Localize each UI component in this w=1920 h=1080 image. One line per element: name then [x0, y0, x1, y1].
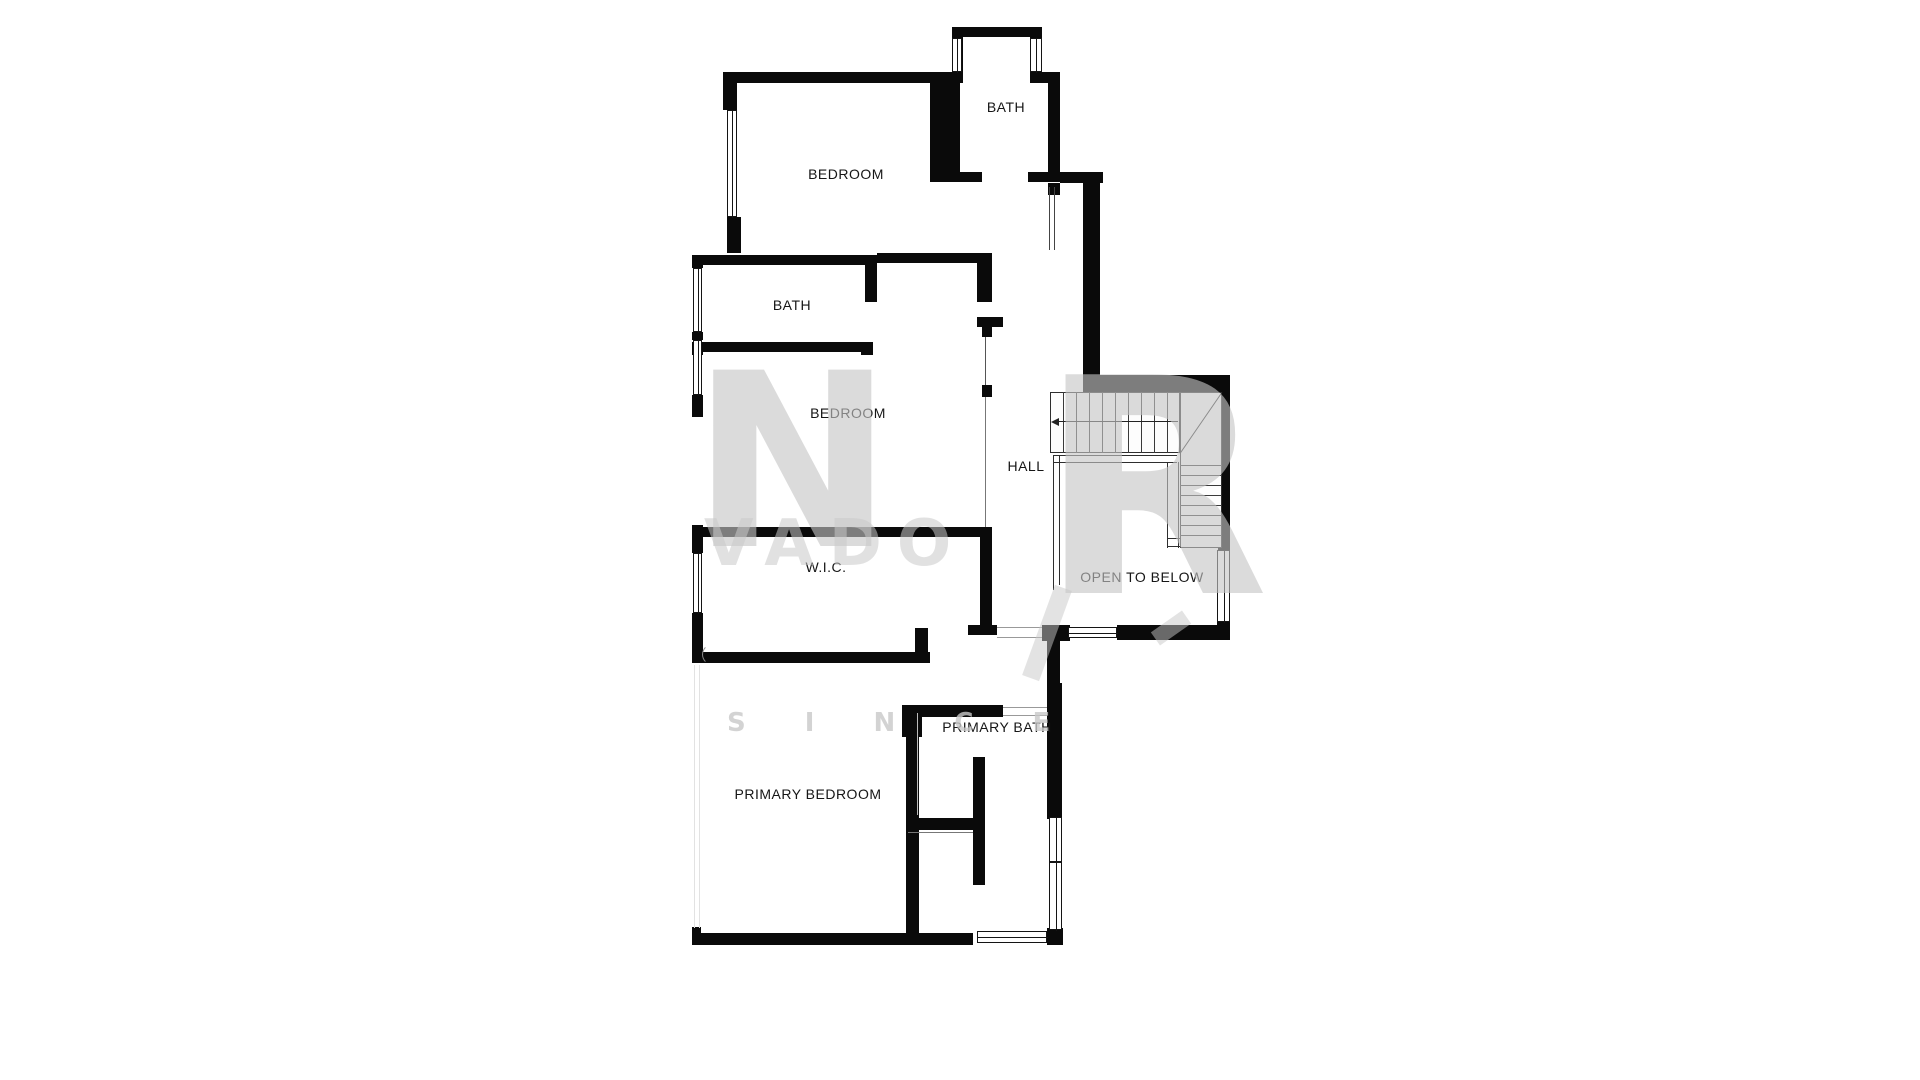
- wall: [919, 705, 1003, 717]
- wall: [692, 332, 703, 340]
- wall: [692, 255, 865, 265]
- wall: [1047, 640, 1060, 685]
- thin-line: [908, 832, 973, 833]
- wall: [692, 395, 703, 417]
- thin-line: [1053, 462, 1177, 463]
- thin-line: [985, 397, 986, 527]
- thin-line: [699, 665, 700, 928]
- wall: [982, 385, 992, 397]
- thin-line: [1049, 187, 1050, 250]
- room-label: BEDROOM: [810, 405, 886, 421]
- wall: [692, 527, 982, 537]
- wall: [1048, 72, 1060, 177]
- thin-line: [1049, 861, 1062, 863]
- window-center-line: [732, 111, 733, 218]
- room-label: BATH: [987, 99, 1025, 115]
- wall: [915, 628, 928, 663]
- thin-line: [1167, 462, 1168, 548]
- window: [1049, 817, 1062, 930]
- stair-tread: [1180, 465, 1222, 466]
- wall: [703, 342, 873, 352]
- thin-line: [1059, 455, 1060, 585]
- wall: [723, 72, 737, 110]
- thin-line: [997, 637, 1042, 638]
- wall: [968, 625, 997, 635]
- window: [1030, 38, 1042, 72]
- window-center-line: [957, 39, 958, 73]
- floor-plan: BATHBEDROOMBATHBEDROOMHALLW.I.C.OPEN TO …: [0, 0, 1920, 1080]
- stair-tread: [1180, 525, 1222, 526]
- wall: [980, 527, 992, 627]
- stair-tread: [1115, 392, 1116, 453]
- window-center-line: [698, 341, 699, 396]
- thin-line: [1003, 715, 1047, 716]
- stair-tread: [1063, 392, 1064, 453]
- window: [952, 38, 962, 72]
- thin-line: [1003, 707, 1047, 708]
- stair-tread: [1180, 475, 1222, 476]
- window: [693, 340, 702, 395]
- window: [1217, 550, 1230, 622]
- window: [1068, 627, 1117, 638]
- door-swing-arc: [702, 644, 723, 665]
- wall: [692, 255, 703, 268]
- thin-line: [1053, 455, 1177, 456]
- stair-tread: [1180, 485, 1222, 486]
- wall: [1028, 172, 1063, 182]
- wall: [1117, 625, 1230, 640]
- wall: [1042, 625, 1070, 641]
- stair-tread: [1180, 535, 1222, 536]
- wall: [703, 652, 930, 663]
- stair-tread: [1089, 392, 1090, 453]
- thin-line: [985, 337, 986, 385]
- stair-tread: [1180, 495, 1222, 496]
- window-center-line: [698, 554, 699, 614]
- window: [693, 553, 702, 613]
- wall: [692, 927, 701, 945]
- thin-line: [1054, 187, 1055, 250]
- window-center-line: [1056, 818, 1057, 931]
- wall: [952, 27, 1040, 37]
- stair-tread: [1180, 505, 1222, 506]
- wall: [977, 253, 992, 302]
- wall: [692, 933, 973, 945]
- wall: [865, 255, 877, 302]
- room-label: PRIMARY BATH: [942, 719, 1051, 735]
- stair-direction-arrow-icon: [1051, 418, 1059, 426]
- wall: [1060, 172, 1103, 183]
- thin-line: [997, 627, 1042, 628]
- wall: [1095, 375, 1230, 392]
- thin-line: [1053, 455, 1054, 590]
- room-label: BATH: [773, 297, 811, 313]
- thin-line: [694, 665, 695, 928]
- room-label: BEDROOM: [808, 166, 884, 182]
- room-label: OPEN TO BELOW: [1080, 569, 1203, 585]
- stair-tread: [1180, 515, 1222, 516]
- window-center-line: [1224, 551, 1225, 623]
- window-center-line: [978, 937, 1048, 938]
- wall: [930, 83, 960, 182]
- wall: [861, 342, 873, 355]
- wall: [877, 253, 992, 263]
- wall: [1047, 683, 1062, 819]
- room-label: PRIMARY BEDROOM: [734, 786, 881, 802]
- room-label: HALL: [1007, 458, 1044, 474]
- thin-line: [1178, 462, 1179, 548]
- stair-tread: [1167, 392, 1168, 453]
- wall: [728, 72, 963, 83]
- stair-tread: [1154, 392, 1155, 453]
- wall: [1083, 183, 1100, 392]
- wall: [958, 172, 982, 182]
- room-label: W.I.C.: [805, 559, 846, 575]
- thin-line: [917, 713, 918, 815]
- window: [977, 931, 1047, 943]
- stair-tread: [1141, 392, 1142, 453]
- window-center-line: [1036, 39, 1037, 73]
- wall: [982, 325, 992, 337]
- window-center-line: [1069, 633, 1118, 634]
- stair-tread: [1076, 392, 1077, 453]
- stair-tread: [1128, 392, 1129, 453]
- window: [727, 110, 737, 217]
- floor-plan-page: BATHBEDROOMBATHBEDROOMHALLW.I.C.OPEN TO …: [0, 0, 1920, 1080]
- window: [693, 268, 702, 332]
- window-center-line: [698, 269, 699, 333]
- wall: [727, 217, 741, 253]
- wall: [908, 818, 973, 830]
- stair-tread: [1102, 392, 1103, 453]
- wall: [973, 757, 985, 885]
- stair-direction-line: [1058, 421, 1178, 422]
